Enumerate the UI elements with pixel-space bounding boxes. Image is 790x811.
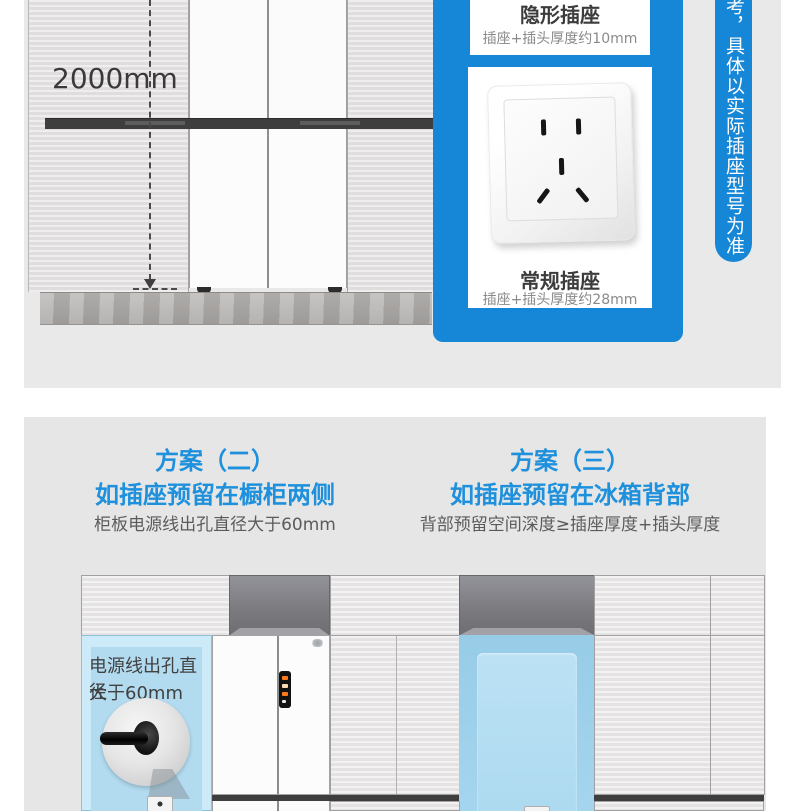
fridge-mid-divider-band: [45, 118, 433, 129]
plan3-subtitle: 如插座预留在冰箱背部: [385, 482, 755, 509]
side-note-text: 考，具体以实际插座型号为准: [715, 0, 752, 256]
niche-top-recess: [459, 575, 595, 636]
cabinet-panel-left: [28, 0, 189, 292]
upper-cabinet-panel: [710, 575, 765, 636]
back-recess-highlight: [459, 635, 595, 811]
fridge-door-seam: [267, 0, 269, 118]
fridge-lower-doors: [212, 801, 330, 811]
fridge-control-display: [279, 671, 291, 708]
fridge-door-seam: [267, 129, 269, 288]
socket-dot: [158, 802, 163, 807]
fridge-door-seam: [277, 636, 279, 794]
wood-floor: [40, 292, 432, 325]
display-segment: [282, 684, 288, 688]
plan3-title: 方案（三）: [385, 448, 755, 475]
upper-cabinet-panel: [330, 575, 460, 636]
power-cable-icon: [100, 732, 148, 745]
socket-slot: [576, 118, 581, 134]
height-measurement-label: 2000mm: [52, 62, 178, 95]
socket-slot: [541, 119, 546, 135]
cabinet-panel: [594, 635, 711, 795]
plan2-title: 方案（二）: [40, 448, 390, 475]
plan2-subtitle: 如插座预留在橱柜两侧: [40, 482, 390, 509]
hidden-socket-title: 隐形插座: [470, 3, 650, 27]
dashed-measure-line: [149, 0, 151, 280]
plan2-heading: 方案（二） 如插座预留在橱柜两侧 柜板电源线出孔直径大于60mm: [40, 448, 390, 534]
display-segment: [282, 676, 288, 680]
recess-lip: [230, 628, 329, 635]
power-socket-mini-icon: [147, 796, 173, 811]
upper-cabinet-panel: [81, 575, 230, 636]
cabinet-panel: [330, 635, 460, 795]
upper-cabinet-panel: [594, 575, 711, 636]
power-socket-mini-icon: [524, 806, 550, 811]
side-note-pill: 考，具体以实际插座型号为准: [715, 0, 752, 262]
cable-hole-zoom-icon: [102, 698, 190, 786]
back-recess-inner: [477, 653, 577, 811]
cabinet-seam: [396, 636, 397, 794]
socket-slot: [559, 158, 564, 175]
cable-hole-callout-panel: 电源线出孔直径 大于60mm: [81, 635, 212, 811]
product-installation-infographic: 2000mm 隐形插座 插座+插头厚度约10mm 常规插座 插座+插头厚度约28…: [0, 0, 790, 811]
cabinet-panel-right: [347, 0, 433, 292]
cabinet-panel: [594, 801, 764, 811]
dashed-measure-tick: [133, 288, 177, 290]
midea-logo-icon: [311, 639, 324, 647]
fridge-door-seam: [277, 801, 279, 811]
display-segment: [282, 692, 288, 696]
handle-highlight: [125, 121, 185, 125]
niche-top-recess: [229, 575, 330, 636]
hidden-socket-card: 隐形插座 插座+插头厚度约10mm: [470, 0, 650, 55]
cabinet-panel: [330, 801, 460, 811]
plan3-note: 背部预留空间深度≥插座厚度+插头厚度: [385, 516, 755, 534]
plan2-note: 柜板电源线出孔直径大于60mm: [40, 516, 390, 534]
regular-socket-subtitle: 插座+插头厚度约28mm: [468, 289, 652, 309]
socket-icon: [487, 82, 635, 244]
hidden-socket-subtitle: 插座+插头厚度约10mm: [470, 31, 650, 48]
display-segment: [282, 700, 286, 703]
cabinet-panel: [710, 635, 765, 795]
handle-highlight: [300, 121, 360, 125]
recess-lip: [460, 628, 594, 635]
fridge-front: [212, 635, 330, 795]
plan3-heading: 方案（三） 如插座预留在冰箱背部 背部预留空间深度≥插座厚度+插头厚度: [385, 448, 755, 534]
